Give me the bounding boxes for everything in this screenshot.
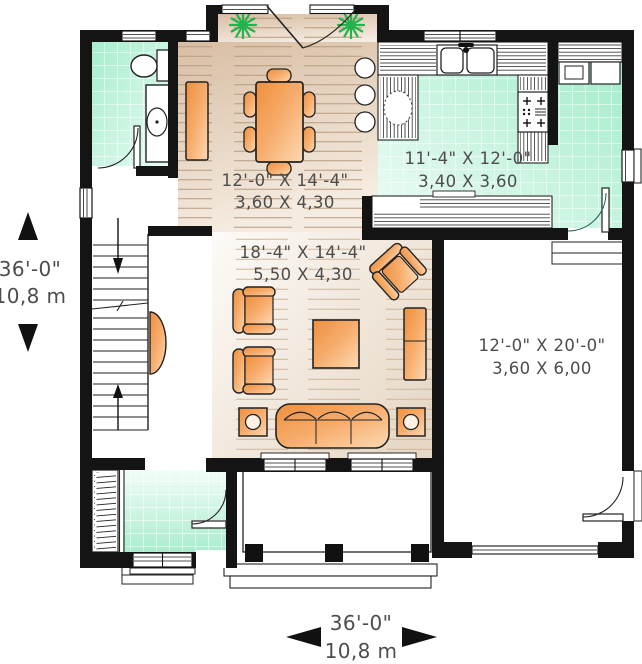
foyer-closet (92, 470, 124, 552)
buffet (186, 82, 208, 160)
dimension-arrow-right-icon (402, 627, 437, 647)
stair-up-arrow-icon (113, 384, 123, 430)
dimension-arrow-up-icon (18, 212, 38, 240)
toilet-bowl (131, 55, 157, 77)
stair-down-arrow-icon (113, 218, 123, 274)
end-table (239, 408, 267, 436)
bottom-dimension: 36'-0" 10,8 m (286, 611, 437, 663)
left-dimension-metric: 10,8 m (0, 284, 66, 308)
left-dimension: 36'-0" 10,8 m (0, 212, 66, 352)
dimension-arrow-down-icon (18, 324, 38, 352)
tv-console (404, 308, 426, 380)
dimension-arrow-left-icon (286, 627, 321, 647)
living-window (261, 453, 329, 471)
garage-dimensions-metric: 3,60 X 6,00 (492, 359, 592, 378)
toilet-tank (157, 50, 169, 81)
porch-column (325, 544, 343, 562)
garage-dimensions-imperial: 12'-0" X 20'-0" (479, 336, 606, 355)
bar-stools (355, 58, 375, 132)
armchair (233, 287, 275, 334)
bottom-dimension-imperial: 36'-0" (330, 611, 393, 635)
living-window (348, 453, 416, 471)
armchair (233, 347, 275, 394)
garage-door (472, 546, 598, 554)
porch-column (245, 544, 263, 562)
stove (518, 92, 548, 132)
porch (224, 470, 437, 588)
hall-window (80, 188, 92, 218)
bottom-dimension-metric: 10,8 m (325, 639, 398, 663)
porch-step (224, 564, 437, 576)
garage-entry-steps (552, 242, 627, 264)
porch-step (230, 576, 431, 588)
floor-plan-image: 12'-0" X 14'-4" 3,60 X 4,30 11'-4" X 12'… (0, 0, 642, 664)
counter-ledge (433, 191, 475, 197)
end-table (397, 408, 425, 436)
foyer-window (130, 553, 195, 574)
coffee-table (313, 320, 359, 368)
console-table (150, 312, 166, 374)
kitchen-sink (437, 43, 497, 75)
dining-table (256, 82, 303, 162)
faucet-icon (458, 43, 474, 47)
dining-side-window (186, 31, 210, 41)
living-dimensions-imperial: 18'-4" X 14'-4" (240, 243, 367, 262)
garage-side-door (583, 471, 642, 521)
lamp-icon (404, 415, 419, 430)
living-dimensions-metric: 5,50 X 4,30 (253, 265, 353, 284)
floor-plan: 12'-0" X 14'-4" 3,60 X 4,30 11'-4" X 12'… (0, 0, 642, 664)
laundry-window (622, 149, 641, 183)
left-dimension-imperial: 36'-0" (0, 257, 61, 281)
dining-dimensions-imperial: 12'-0" X 14'-4" (222, 171, 349, 190)
kitchen-dimensions-imperial: 11'-4" X 12'-0" (405, 149, 532, 168)
dishwasher (384, 91, 412, 125)
kitchen-window (424, 31, 496, 41)
lamp-icon (246, 415, 261, 430)
dining-dimensions-metric: 3,60 X 4,30 (235, 193, 335, 212)
kitchen-dimensions-metric: 3,40 X 3,60 (418, 172, 518, 191)
sofa (276, 404, 389, 448)
porch-column (411, 544, 429, 562)
powder-window (122, 31, 156, 41)
dryer (591, 62, 620, 84)
